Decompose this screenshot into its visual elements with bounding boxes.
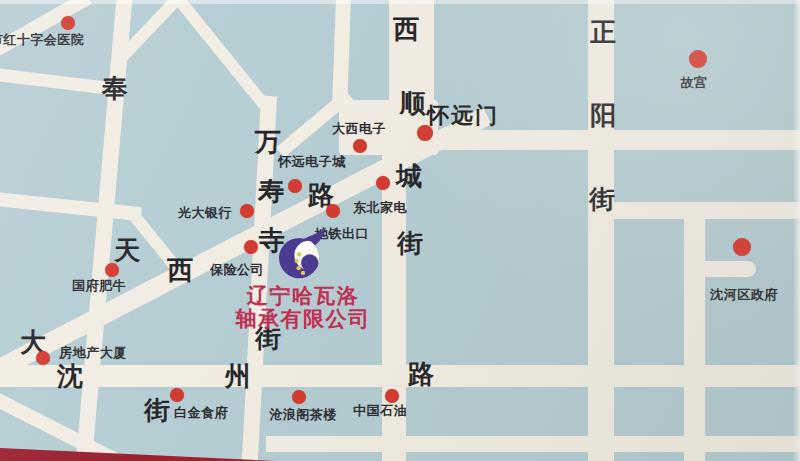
landmark-label: 市红十字会医院 [0,31,84,49]
landmark-label: 白金食府 [174,404,228,422]
street-name-char: 城 [396,163,422,189]
landmark-label: 怀远门 [427,101,499,131]
landmark-dot [689,50,707,68]
map-canvas: 奉天街万寿寺街大西路西顺城街正阳街沈州路 市红十字会医院大西电子怀远门故宫怀远电… [0,0,800,461]
landmark-label: 沈河区政府 [710,286,778,304]
card-edge-right [793,0,800,461]
landmark-label: 怀远电子城 [278,153,346,171]
landmark-label: 保险公司 [210,261,264,279]
street-name-char: 万 [255,129,281,155]
road-shenzhou-road [0,365,800,387]
street-name-char: 西 [167,257,193,283]
road-fengtian-street [75,0,133,461]
landmark-label: 大西电子 [332,120,386,138]
landmark-dot [385,389,399,403]
street-name-char: 奉 [102,75,128,101]
company-logo [279,226,327,282]
road [0,68,118,96]
landmark-dot [244,240,258,254]
landmark-label: 光大银行 [178,204,232,222]
landmark-dot [36,351,50,365]
street-name-char: 街 [144,397,170,423]
landmark-dot [292,390,306,404]
road [684,202,705,461]
road [332,0,351,106]
landmark-label: 中国石油 [353,402,407,420]
street-name-char: 西 [393,16,419,42]
road-zhengyang-street [588,0,614,461]
road [698,261,756,277]
landmark-label: 房地产大厦 [59,344,127,362]
landmark-dot [733,238,751,256]
landmark-dot [326,204,340,218]
landmark-dot [105,263,119,277]
street-name-char: 顺 [400,90,426,116]
landmark-dot [288,179,302,193]
street-name-char: 州 [225,363,251,389]
company-name-line2: 轴承有限公司 [236,305,371,333]
street-name-char: 天 [114,237,140,263]
landmark-label: 东北家电 [353,199,407,217]
landmark-dot [353,139,367,153]
road [266,436,800,452]
street-name-char: 寿 [258,178,284,204]
street-name-char: 街 [589,186,615,212]
street-name-char: 正 [590,19,616,45]
landmark-dot [170,388,184,402]
landmark-dot [61,16,75,30]
street-name-char: 阳 [590,102,616,128]
street-name-char: 街 [397,230,423,256]
card-edge-top [0,0,800,4]
street-name-char: 路 [408,361,434,387]
road [0,192,142,221]
landmark-dot [376,176,390,190]
road [171,0,268,109]
landmark-label: 故宫 [681,74,708,92]
landmark-label: 沧浪阁茶楼 [269,406,337,424]
landmark-label: 国府肥牛 [72,277,126,295]
street-name-char: 沈 [57,363,83,389]
landmark-dot [240,204,254,218]
